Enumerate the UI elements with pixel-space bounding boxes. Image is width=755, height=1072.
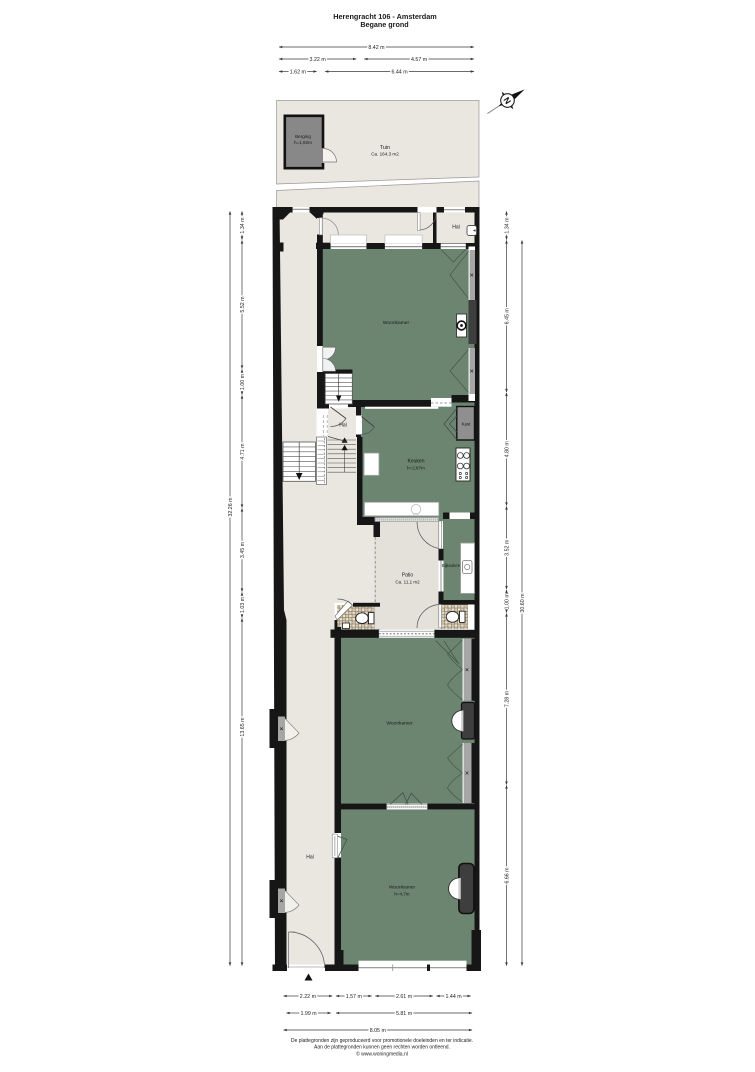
svg-text:5.81 m: 5.81 m bbox=[396, 1011, 413, 1017]
svg-text:Tuin: Tuin bbox=[380, 145, 390, 151]
svg-text:8.42 m: 8.42 m bbox=[368, 45, 385, 51]
svg-text:© www.woningmedia.nl: © www.woningmedia.nl bbox=[356, 1050, 408, 1057]
svg-text:1.00 m: 1.00 m bbox=[504, 593, 510, 610]
svg-text:h=4,7m: h=4,7m bbox=[394, 892, 409, 897]
svg-text:Ca. 11,1 m2: Ca. 11,1 m2 bbox=[395, 580, 420, 585]
svg-text:Begane grond: Begane grond bbox=[360, 20, 408, 29]
svg-text:1.34 m: 1.34 m bbox=[504, 217, 510, 234]
svg-text:6.66 m: 6.66 m bbox=[504, 867, 510, 884]
svg-text:4.57 m: 4.57 m bbox=[411, 57, 428, 63]
svg-text:Woonkamer: Woonkamer bbox=[386, 721, 413, 727]
svg-text:1.99 m: 1.99 m bbox=[300, 1011, 317, 1017]
svg-text:Hal: Hal bbox=[306, 855, 314, 861]
svg-text:h=1,92m: h=1,92m bbox=[294, 140, 312, 145]
svg-text:30.60 m: 30.60 m bbox=[520, 593, 526, 613]
svg-text:Ca. 164,3 m2: Ca. 164,3 m2 bbox=[371, 152, 399, 157]
svg-text:Woonkamer: Woonkamer bbox=[383, 320, 410, 326]
svg-text:Hal: Hal bbox=[452, 225, 460, 231]
svg-text:7.28 m: 7.28 m bbox=[504, 690, 510, 707]
svg-text:32.26 m: 32.26 m bbox=[228, 497, 234, 517]
svg-text:h=2,87m: h=2,87m bbox=[407, 466, 425, 471]
svg-text:3.22 m: 3.22 m bbox=[310, 57, 327, 63]
svg-text:Kast: Kast bbox=[462, 422, 472, 427]
svg-text:2.61 m: 2.61 m bbox=[396, 994, 413, 1000]
svg-text:1.03 m: 1.03 m bbox=[240, 596, 246, 613]
svg-text:1.34 m: 1.34 m bbox=[240, 217, 246, 234]
svg-text:5.52 m: 5.52 m bbox=[240, 296, 246, 313]
svg-text:3.45 m: 3.45 m bbox=[240, 541, 246, 558]
svg-text:6.45 m: 6.45 m bbox=[504, 308, 510, 325]
svg-text:De plattegronden zijn geproduc: De plattegronden zijn geproduceerd voor … bbox=[291, 1038, 473, 1044]
svg-text:4.71 m: 4.71 m bbox=[240, 443, 246, 460]
svg-text:6.44 m: 6.44 m bbox=[391, 69, 408, 75]
svg-text:Aan de plattegronden kunnen ge: Aan de plattegronden kunnen geen rechten… bbox=[314, 1045, 450, 1051]
svg-text:Woonkamer: Woonkamer bbox=[389, 885, 416, 891]
svg-text:Keuken: Keuken bbox=[408, 459, 425, 465]
svg-text:4.80 m: 4.80 m bbox=[504, 441, 510, 458]
svg-text:8.05 m: 8.05 m bbox=[370, 1028, 387, 1034]
svg-text:1.00 m: 1.00 m bbox=[240, 373, 246, 390]
svg-text:Hal: Hal bbox=[339, 423, 347, 429]
svg-text:3.52 m: 3.52 m bbox=[504, 539, 510, 556]
svg-text:13.65 m: 13.65 m bbox=[240, 717, 246, 737]
svg-text:1.57 m: 1.57 m bbox=[346, 994, 363, 1000]
svg-text:Berging: Berging bbox=[295, 134, 311, 139]
svg-text:2.22 m: 2.22 m bbox=[300, 994, 317, 1000]
svg-text:Patio: Patio bbox=[402, 573, 414, 579]
svg-text:1.62 m: 1.62 m bbox=[290, 69, 307, 75]
svg-text:1.44 m: 1.44 m bbox=[445, 994, 462, 1000]
svg-text:Bijkeuken: Bijkeuken bbox=[442, 563, 461, 568]
